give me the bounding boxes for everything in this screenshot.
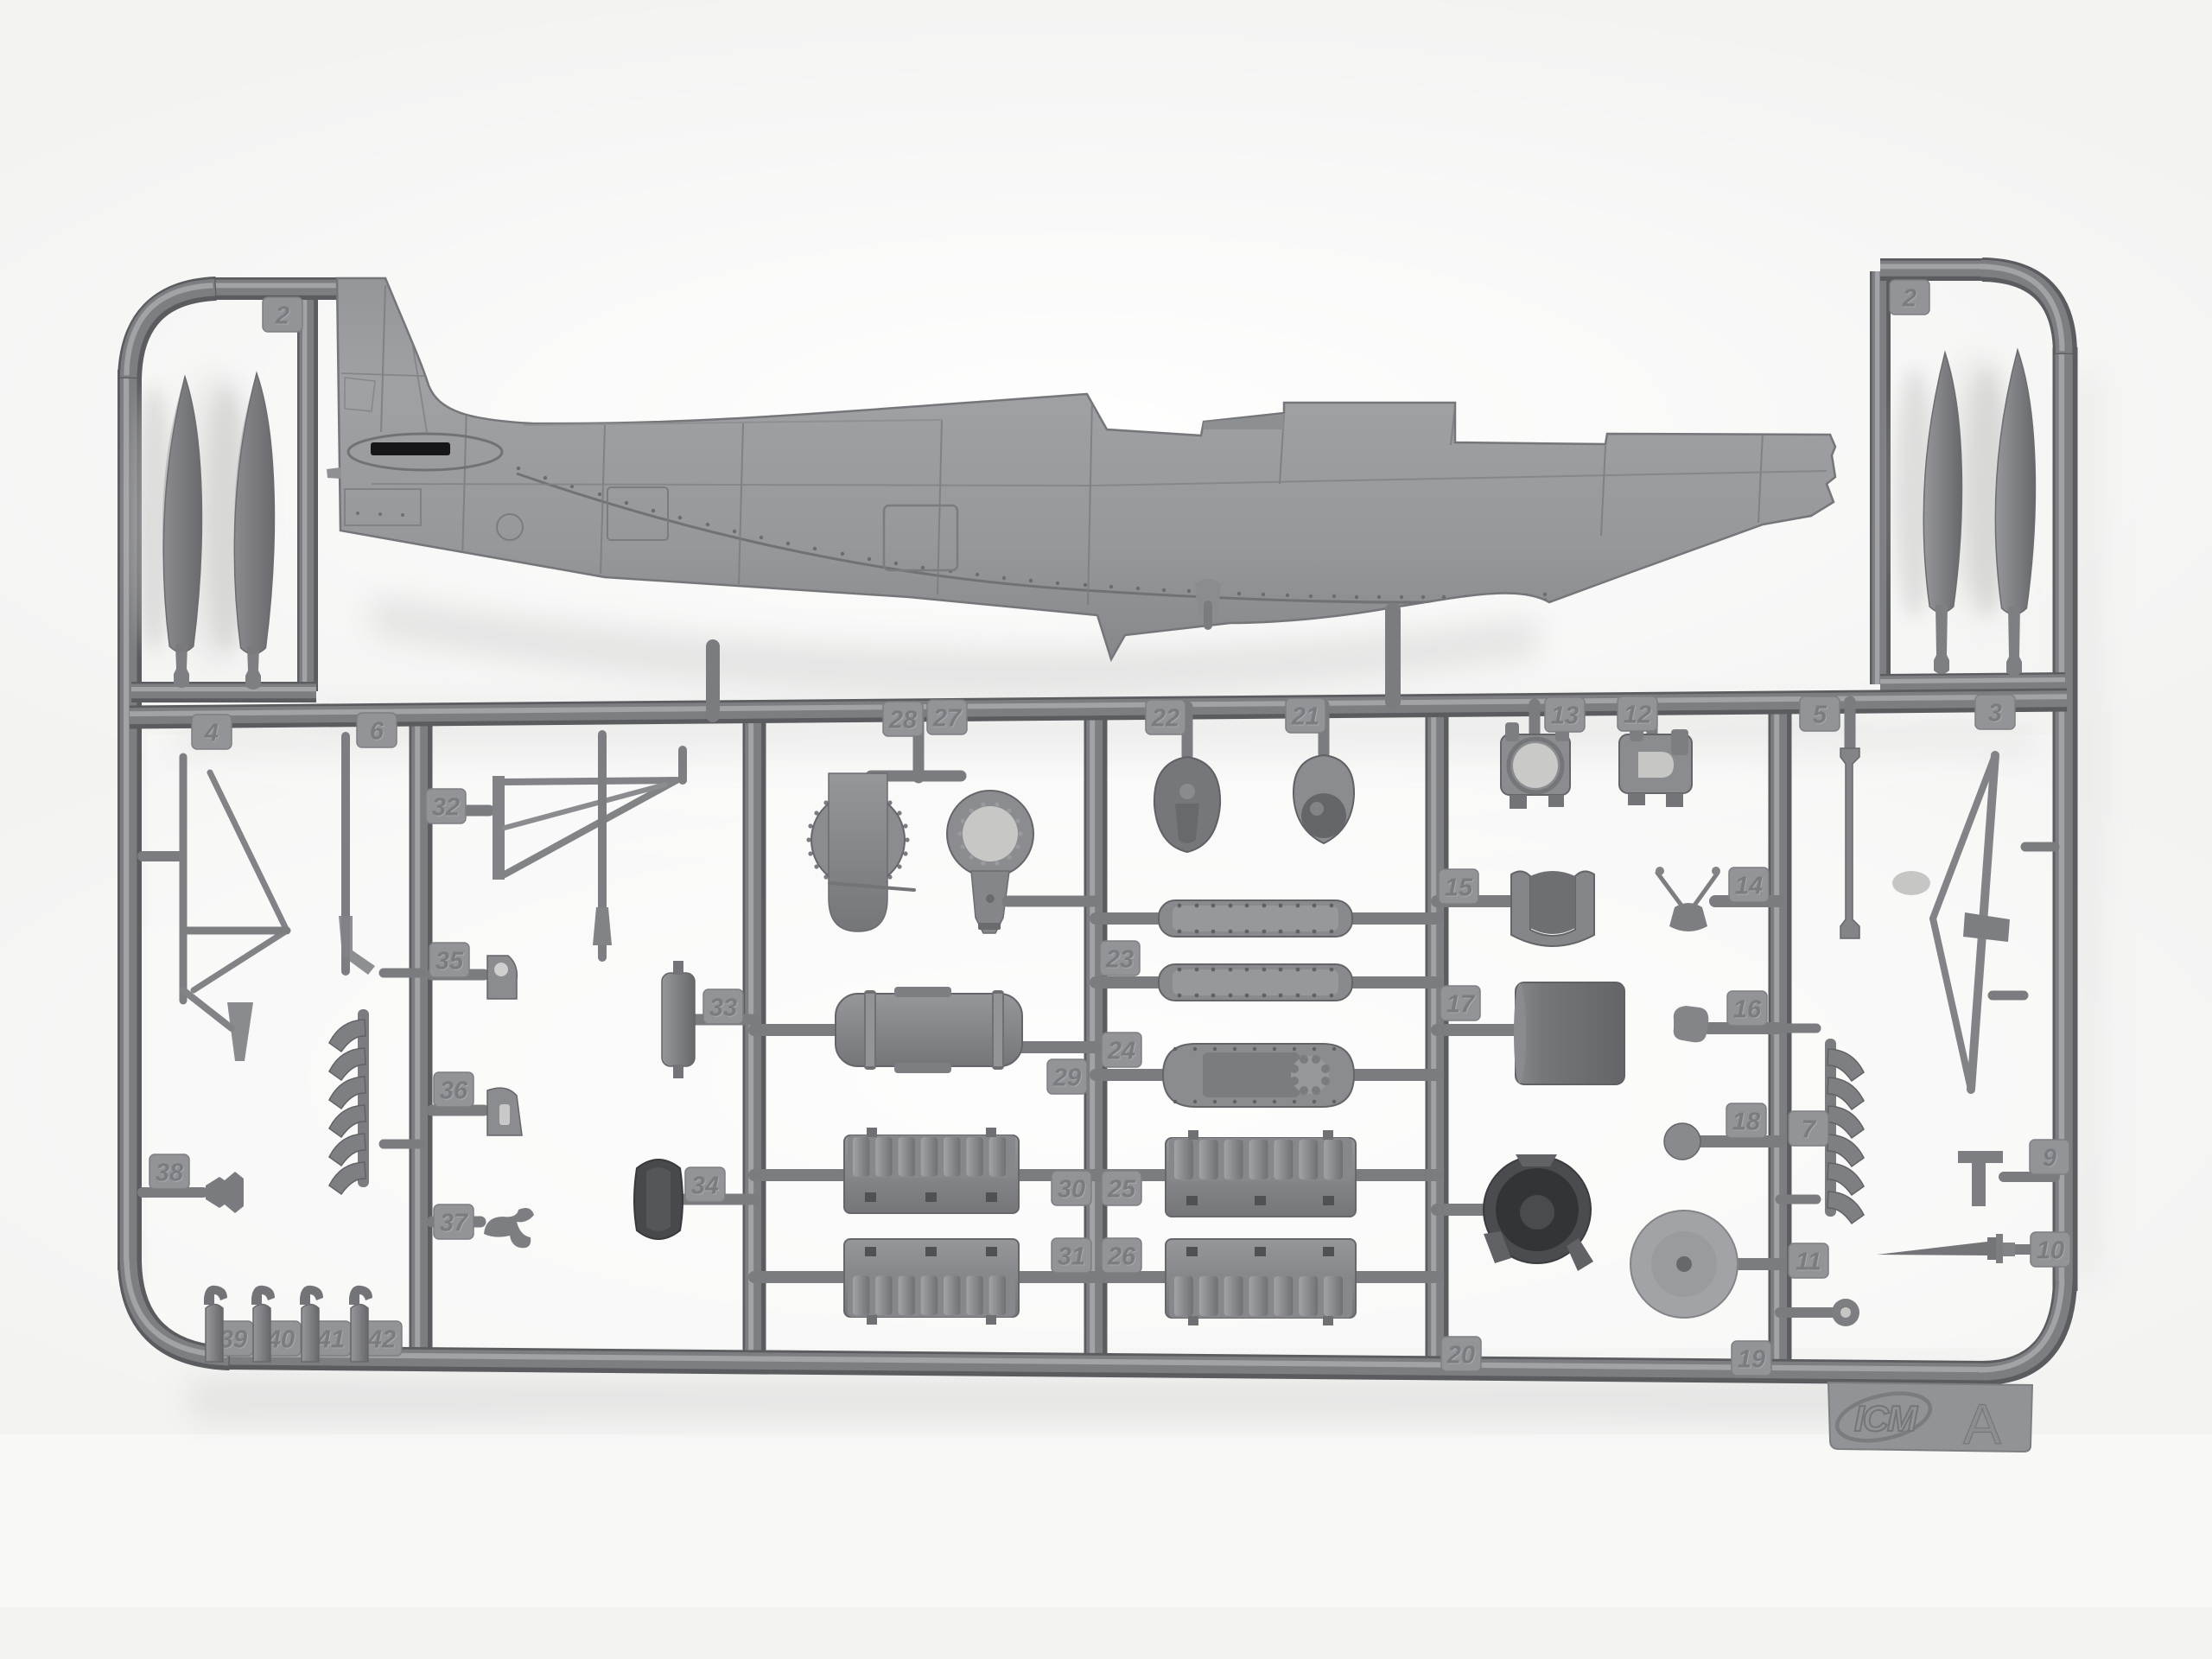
svg-text:A: A <box>1963 1392 2001 1456</box>
svg-text:32: 32 <box>432 793 460 821</box>
svg-text:18: 18 <box>1732 1108 1761 1135</box>
svg-text:22: 22 <box>1151 704 1179 732</box>
svg-text:ICM: ICM <box>1854 1398 1918 1439</box>
svg-text:33: 33 <box>709 994 737 1021</box>
svg-text:10: 10 <box>2037 1236 2064 1264</box>
svg-text:31: 31 <box>1058 1243 1085 1270</box>
svg-text:23: 23 <box>1105 945 1134 973</box>
svg-text:29: 29 <box>1052 1064 1081 1091</box>
svg-text:20: 20 <box>1446 1341 1475 1369</box>
svg-text:3: 3 <box>1988 699 2002 727</box>
svg-text:30: 30 <box>1058 1175 1085 1203</box>
svg-text:7: 7 <box>1802 1116 1817 1143</box>
svg-text:19: 19 <box>1738 1345 1765 1373</box>
svg-text:11: 11 <box>1796 1248 1821 1275</box>
svg-text:6: 6 <box>370 717 385 745</box>
svg-text:41: 41 <box>316 1325 345 1353</box>
svg-text:21: 21 <box>1291 702 1319 730</box>
svg-text:15: 15 <box>1445 874 1473 901</box>
svg-text:36: 36 <box>440 1077 468 1104</box>
svg-text:25: 25 <box>1107 1175 1136 1203</box>
svg-text:13: 13 <box>1551 702 1579 729</box>
svg-text:38: 38 <box>156 1159 184 1186</box>
svg-text:42: 42 <box>367 1325 396 1353</box>
svg-text:26: 26 <box>1107 1243 1136 1270</box>
svg-text:35: 35 <box>435 947 464 975</box>
svg-text:4: 4 <box>204 719 219 747</box>
svg-text:2: 2 <box>275 302 289 329</box>
svg-text:5: 5 <box>1813 701 1827 728</box>
svg-text:37: 37 <box>440 1209 469 1236</box>
svg-text:2: 2 <box>1902 284 1916 312</box>
svg-text:17: 17 <box>1446 990 1476 1018</box>
svg-text:9: 9 <box>2043 1144 2056 1172</box>
svg-text:16: 16 <box>1733 995 1762 1023</box>
svg-text:28: 28 <box>888 706 918 734</box>
svg-text:27: 27 <box>932 704 963 732</box>
svg-text:12: 12 <box>1624 701 1651 728</box>
svg-text:14: 14 <box>1735 872 1763 899</box>
svg-text:34: 34 <box>691 1172 719 1199</box>
svg-text:24: 24 <box>1107 1037 1135 1065</box>
